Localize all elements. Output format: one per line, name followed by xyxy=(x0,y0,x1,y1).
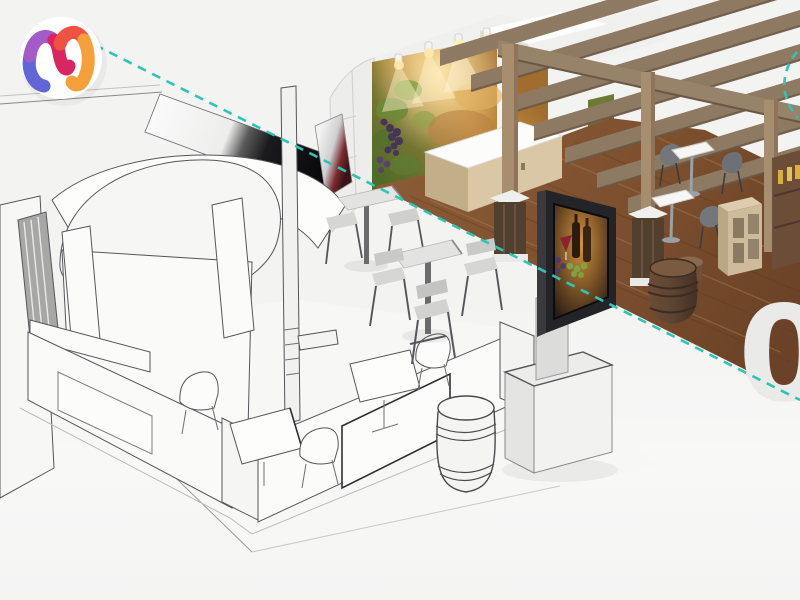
cube-shelf xyxy=(718,197,762,276)
totem-base-side xyxy=(505,372,534,473)
totem-panel-edge xyxy=(537,190,546,337)
wine-barrel-rendered xyxy=(648,259,698,324)
wine-barrel-wireframe xyxy=(436,396,496,492)
hero-image: 01 xyxy=(0,0,800,600)
booth-scene-svg: 01 xyxy=(0,0,800,600)
wine-cabinet xyxy=(772,150,800,270)
watermark-number: 01 xyxy=(738,278,800,432)
